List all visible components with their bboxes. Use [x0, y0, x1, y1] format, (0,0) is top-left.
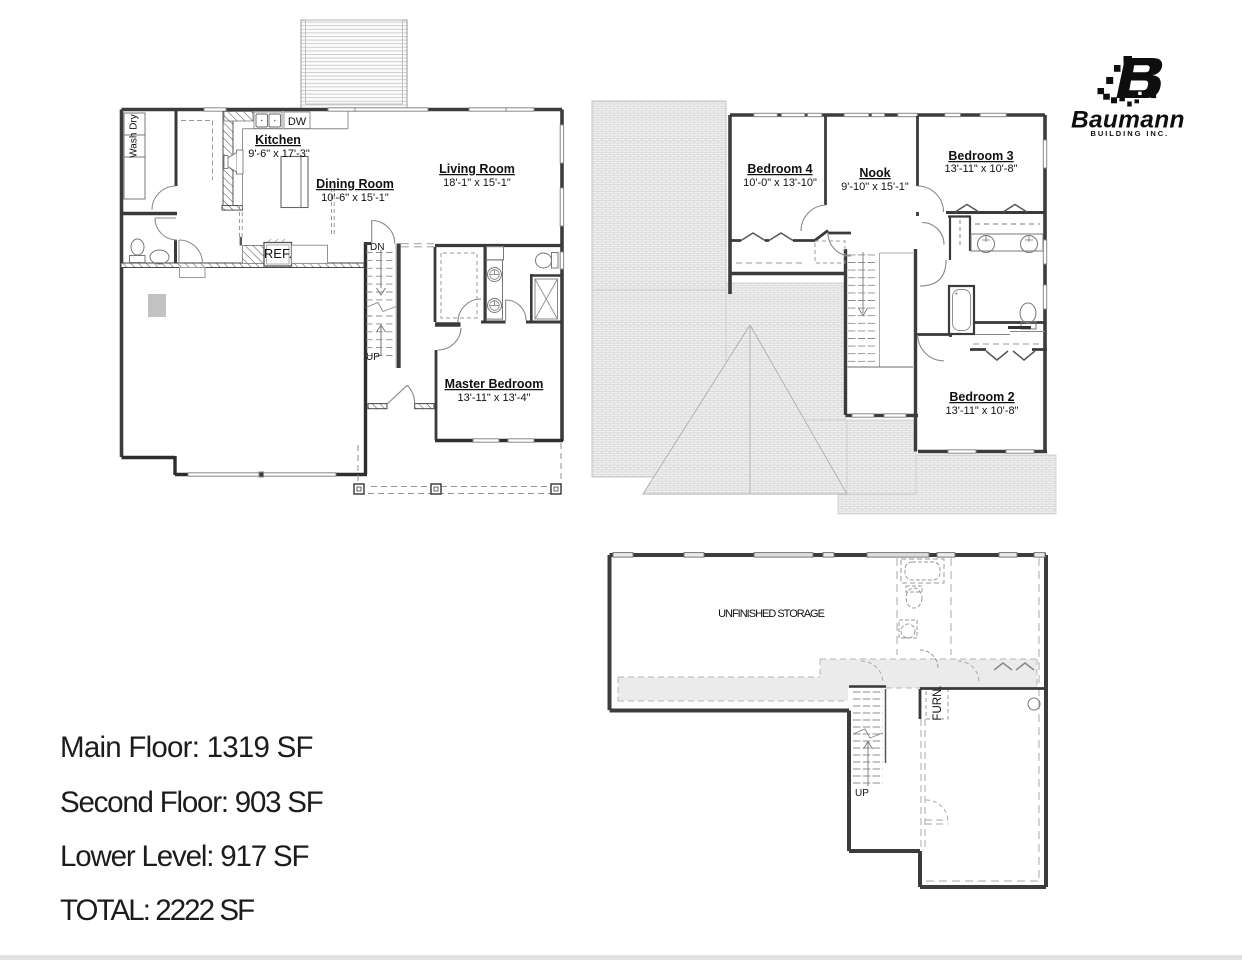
svg-text:BUILDING INC.: BUILDING INC. [1091, 129, 1170, 138]
svg-text:9'-6" x 17'-3": 9'-6" x 17'-3" [248, 148, 310, 160]
svg-text:Wash Dry: Wash Dry [129, 114, 140, 158]
svg-text:REF.: REF. [264, 246, 292, 261]
svg-text:13'-11" x 10'-8": 13'-11" x 10'-8" [945, 163, 1018, 175]
svg-text:18'-1" x 15'-1": 18'-1" x 15'-1" [443, 177, 511, 189]
svg-text:10'-6" x 15'-1": 10'-6" x 15'-1" [321, 192, 389, 204]
svg-text:Nook: Nook [859, 166, 890, 180]
svg-text:10'-0" x 13'-10": 10'-0" x 13'-10" [743, 177, 817, 189]
svg-text:UNFINISHED STORAGE: UNFINISHED STORAGE [718, 608, 825, 620]
svg-text:Kitchen: Kitchen [255, 133, 301, 147]
svg-text:Dining Room: Dining Room [316, 177, 394, 191]
svg-text:Living Room: Living Room [439, 162, 515, 176]
svg-text:13'-11" x 13'-4": 13'-11" x 13'-4" [458, 392, 531, 404]
svg-text:DW: DW [288, 116, 307, 128]
svg-text:DN: DN [370, 242, 384, 253]
svg-text:FURN.: FURN. [932, 685, 944, 720]
svg-text:UP: UP [366, 352, 380, 363]
svg-text:9'-10" x 15'-1": 9'-10" x 15'-1" [841, 181, 909, 193]
svg-text:Bedroom 2: Bedroom 2 [949, 390, 1014, 404]
svg-text:UP: UP [855, 788, 869, 799]
svg-text:13'-11" x 10'-8": 13'-11" x 10'-8" [946, 405, 1019, 417]
svg-text:Bedroom 4: Bedroom 4 [747, 162, 812, 176]
svg-text:Bedroom 3: Bedroom 3 [948, 149, 1013, 163]
svg-text:Master Bedroom: Master Bedroom [445, 377, 544, 391]
